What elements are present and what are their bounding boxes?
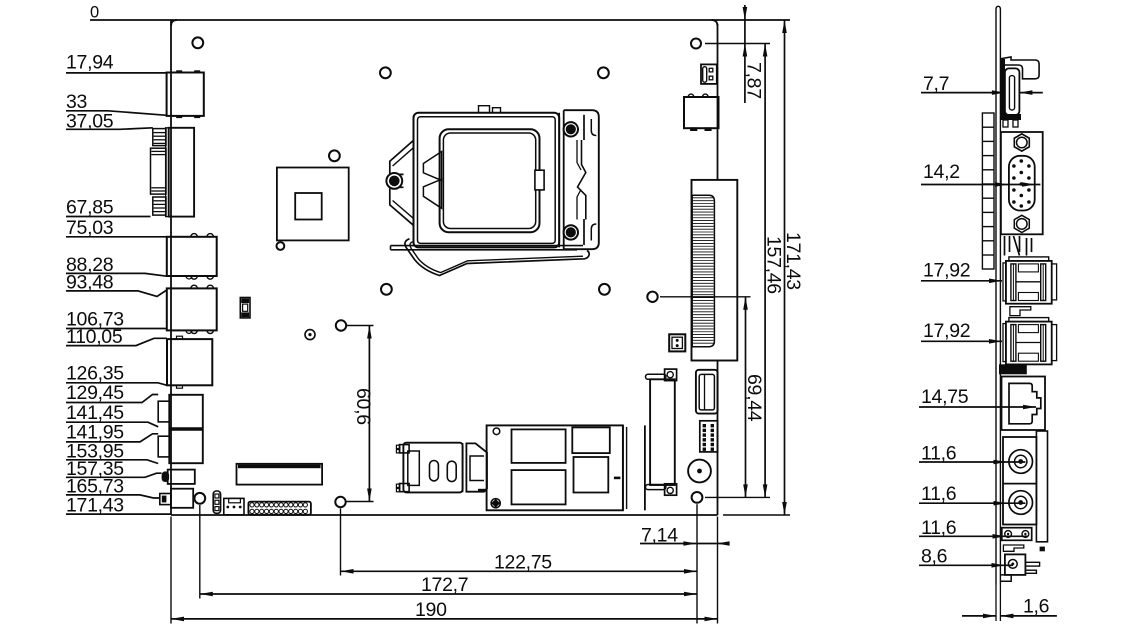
svg-text:172,7: 172,7: [421, 574, 468, 596]
svg-text:157,46: 157,46: [763, 236, 785, 294]
svg-text:14,75: 14,75: [921, 386, 969, 408]
svg-text:69,44: 69,44: [743, 374, 765, 422]
svg-text:129,45: 129,45: [66, 382, 124, 404]
svg-text:93,48: 93,48: [66, 271, 113, 293]
svg-text:110,05: 110,05: [66, 326, 123, 348]
svg-text:8,6: 8,6: [921, 546, 947, 568]
svg-text:1,6: 1,6: [1023, 596, 1049, 618]
svg-text:0: 0: [90, 4, 99, 22]
svg-text:17,92: 17,92: [923, 260, 970, 282]
svg-text:7,87: 7,87: [743, 62, 765, 99]
svg-text:14,2: 14,2: [923, 161, 960, 183]
svg-text:171,43: 171,43: [782, 232, 804, 290]
svg-text:171,43: 171,43: [66, 495, 124, 517]
svg-text:17,92: 17,92: [923, 320, 970, 342]
svg-text:126,35: 126,35: [66, 363, 124, 385]
svg-text:7,7: 7,7: [923, 73, 949, 95]
svg-text:67,85: 67,85: [66, 196, 114, 218]
svg-text:122,75: 122,75: [494, 552, 552, 574]
svg-text:141,45: 141,45: [66, 402, 124, 424]
svg-text:190: 190: [415, 599, 447, 621]
svg-text:60,6: 60,6: [352, 388, 374, 425]
svg-text:75,03: 75,03: [66, 217, 113, 239]
svg-text:11,6: 11,6: [921, 483, 956, 505]
svg-text:17,94: 17,94: [66, 52, 114, 74]
